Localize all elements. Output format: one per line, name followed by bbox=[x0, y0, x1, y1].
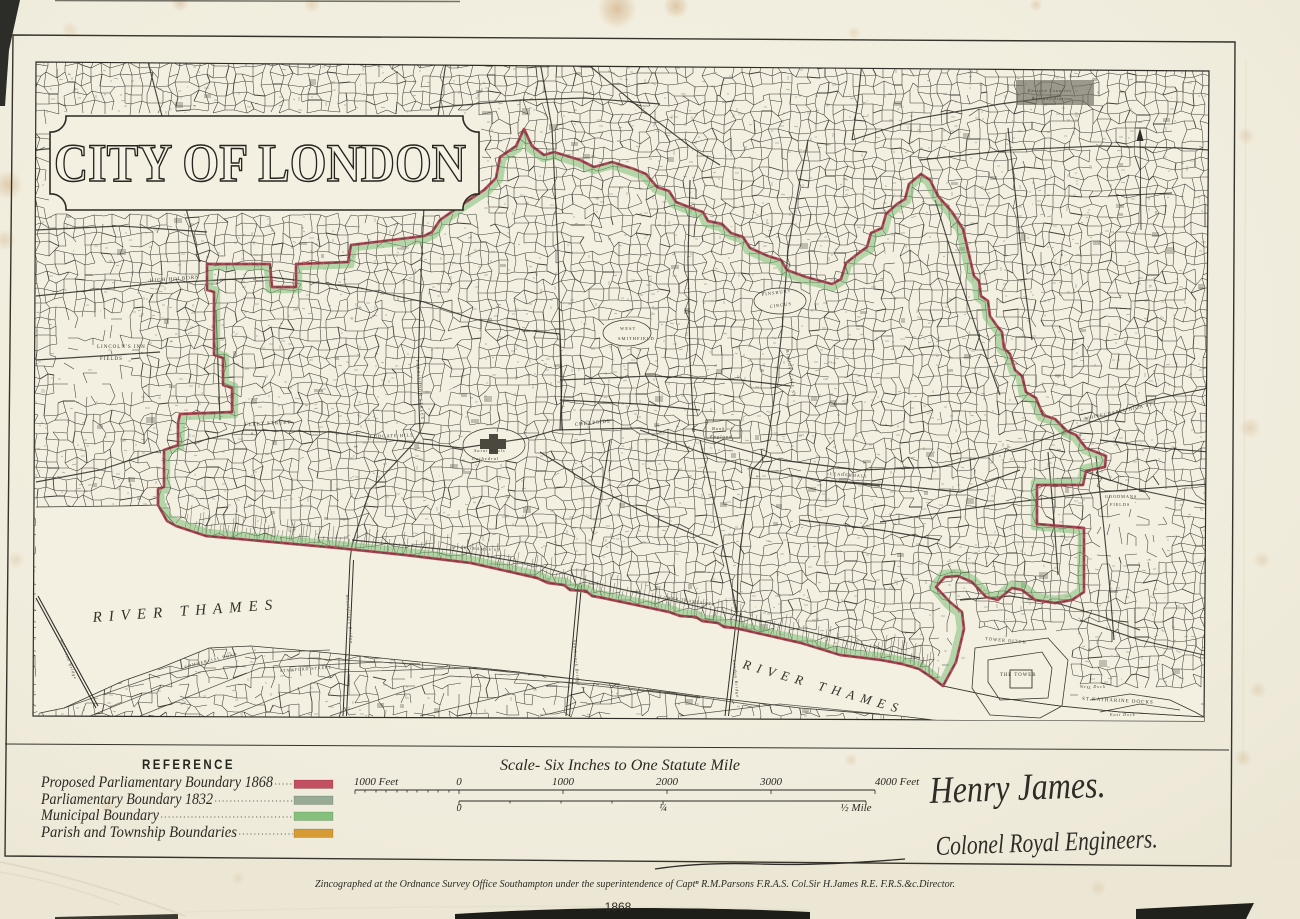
svg-text:1868: 1868 bbox=[605, 900, 632, 914]
svg-text:1000 Feet: 1000 Feet bbox=[354, 776, 399, 788]
svg-text:WEST: WEST bbox=[620, 326, 636, 331]
svg-text:England: England bbox=[709, 434, 732, 439]
svg-text:½ Mile: ½ Mile bbox=[840, 802, 871, 814]
svg-text:Proposed Parliamentary Boundar: Proposed Parliamentary Boundary 1868 bbox=[40, 774, 273, 791]
svg-text:Henry James.: Henry James. bbox=[928, 764, 1106, 812]
svg-text:Municipal Boundary: Municipal Boundary bbox=[40, 807, 160, 824]
svg-text:1000: 1000 bbox=[552, 776, 575, 788]
svg-text:Cathedral: Cathedral bbox=[472, 456, 499, 461]
svg-text:0: 0 bbox=[457, 803, 462, 814]
svg-text:West Dock: West Dock bbox=[1080, 684, 1106, 689]
svg-text:Parish and Township Boundaries: Parish and Township Boundaries bbox=[40, 824, 237, 841]
svg-text:Saint Pauls: Saint Pauls bbox=[474, 448, 506, 453]
svg-text:Scale- Six Inches to One Statu: Scale- Six Inches to One Statute Mile bbox=[500, 757, 740, 774]
svg-text:Parliamentary Boundary 1832: Parliamentary Boundary 1832 bbox=[40, 791, 213, 808]
svg-text:East Dock: East Dock bbox=[1109, 712, 1136, 717]
svg-text:SMITHFIELD: SMITHFIELD bbox=[618, 336, 655, 341]
svg-text:Eastern Counties: Eastern Counties bbox=[1027, 88, 1072, 93]
svg-text:Railway Station: Railway Station bbox=[1031, 96, 1072, 101]
svg-text:CITY OF LONDON: CITY OF LONDON bbox=[54, 133, 466, 193]
svg-text:2000: 2000 bbox=[656, 776, 679, 788]
svg-text:LINCOLN'S INN: LINCOLN'S INN bbox=[97, 345, 146, 350]
svg-text:THE TOWER: THE TOWER bbox=[1000, 673, 1036, 678]
svg-text:¼: ¼ bbox=[659, 803, 667, 814]
svg-text:4000 Feet: 4000 Feet bbox=[875, 776, 920, 788]
svg-text:Zincographed at the Ordnance S: Zincographed at the Ordnance Survey Offi… bbox=[315, 878, 955, 890]
svg-text:FIELDS: FIELDS bbox=[100, 357, 123, 362]
svg-text:GOODMANS: GOODMANS bbox=[1105, 494, 1137, 499]
svg-text:3000: 3000 bbox=[759, 776, 783, 788]
svg-text:FIELDS: FIELDS bbox=[1110, 502, 1130, 507]
svg-text:0: 0 bbox=[456, 776, 462, 788]
svg-text:REFERENCE: REFERENCE bbox=[142, 756, 235, 772]
svg-text:Bank of: Bank of bbox=[712, 426, 733, 431]
